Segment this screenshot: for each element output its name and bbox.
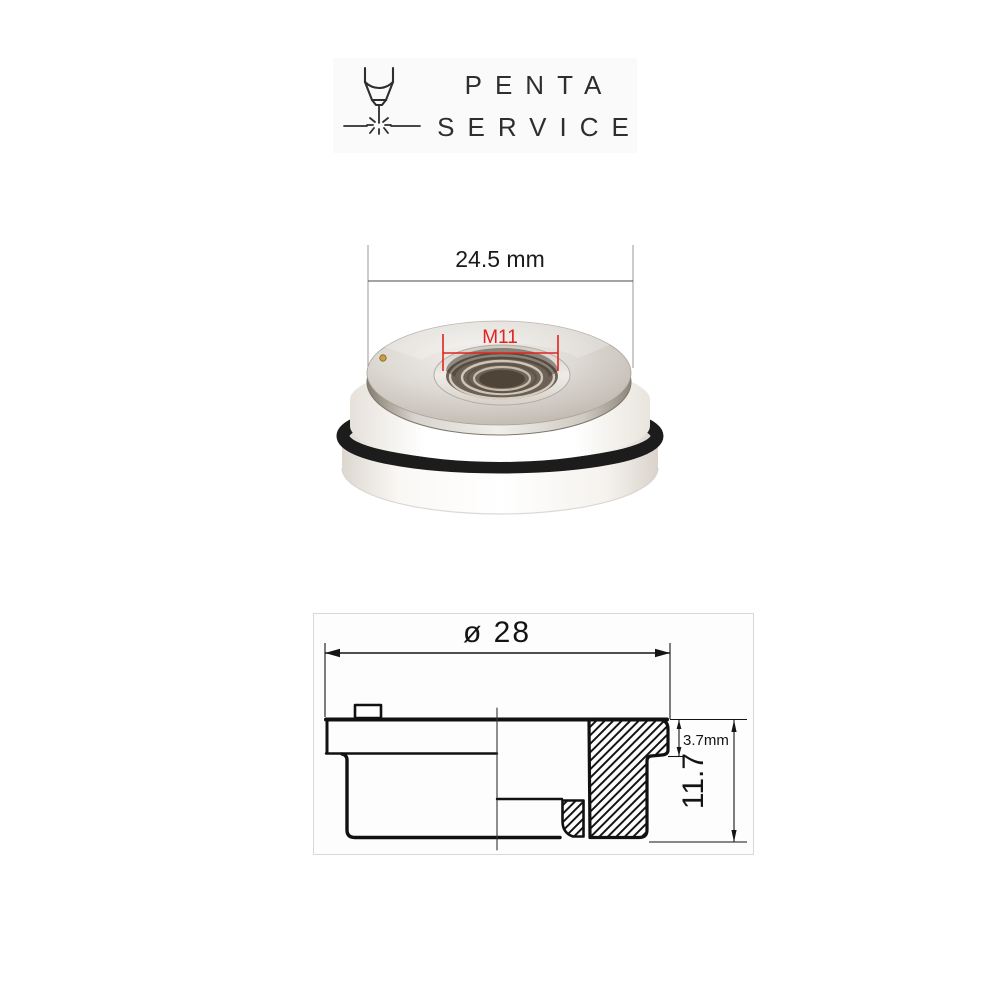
total-height-label: 11.7 <box>677 753 710 809</box>
page: PENTA SERVICE <box>0 0 990 990</box>
brand-line-2: SERVICE <box>437 114 642 140</box>
flange-height-label: 3.7mm <box>683 732 729 749</box>
diameter-label: ø 28 <box>463 616 531 649</box>
alignment-pin <box>380 355 386 361</box>
threaded-bore <box>434 345 570 405</box>
thread-size-label: M11 <box>482 327 518 348</box>
brand-name: PENTA SERVICE <box>429 58 637 153</box>
product-photo: 24.5 mm <box>320 230 680 520</box>
laser-cutting-head-icon <box>340 61 424 141</box>
technical-drawing: ø 28 <box>313 613 754 855</box>
photo-diameter-label: 24.5 mm <box>455 246 544 272</box>
brand-line-1: PENTA <box>465 72 615 98</box>
brand-logo: PENTA SERVICE <box>333 58 637 153</box>
